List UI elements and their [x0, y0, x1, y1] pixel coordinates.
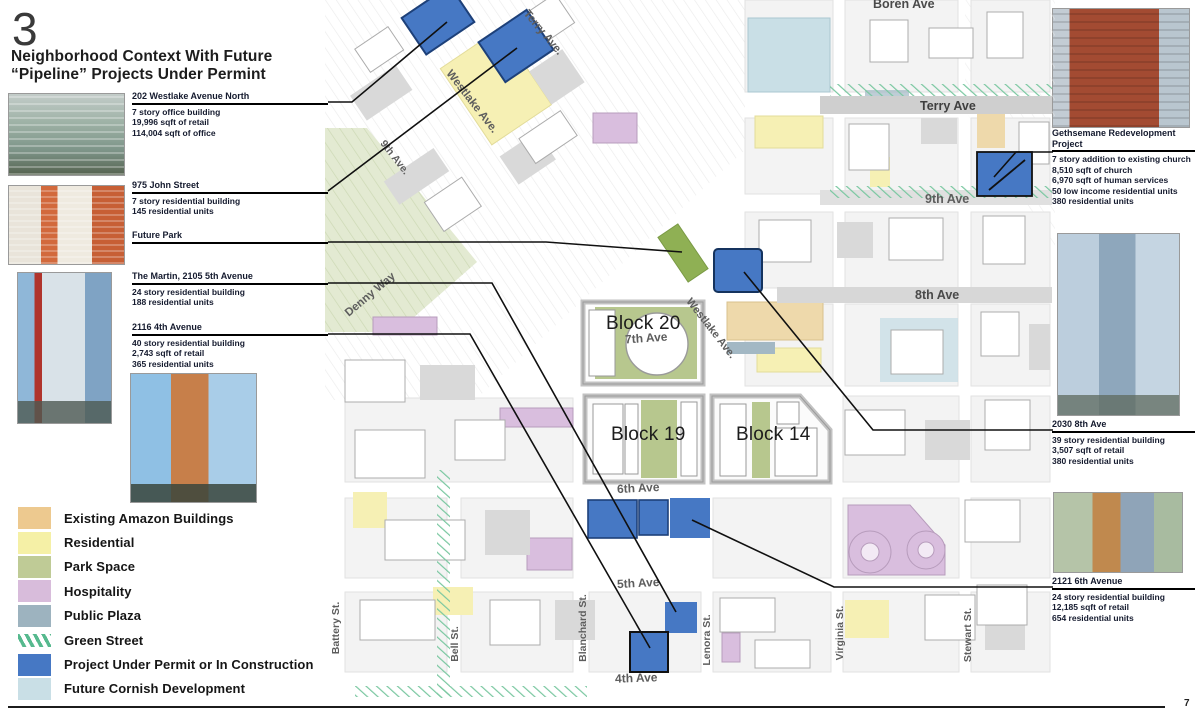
future-cornish-zone: [748, 18, 830, 92]
legend-swatch-hatch: [18, 634, 51, 647]
annotation-future-park: Future Park: [132, 230, 328, 246]
annotation-title: The Martin, 2105 5th Avenue: [132, 271, 328, 285]
street-label-lenora-st: Lenora St.: [701, 605, 713, 675]
photo-975-john: [8, 185, 125, 265]
legend-item-residential: Residential: [18, 530, 313, 554]
annotation-title: Future Park: [132, 230, 328, 244]
annotation-2121-6th: 2121 6th Avenue 24 story residential bui…: [1052, 576, 1195, 623]
annotation-gethsemane: Gethsemane Redevelopment Project 7 story…: [1052, 128, 1195, 207]
page-title-line2: “Pipeline” Projects Under Permint: [11, 66, 272, 84]
annotation-line: 24 story residential building: [1052, 592, 1195, 603]
legend-item-public-plaza: Public Plaza: [18, 604, 313, 628]
annotation-line: 19,996 sqft of retail: [132, 117, 328, 128]
legend-label: Hospitality: [64, 584, 132, 599]
footer-page-number: 7: [1184, 698, 1190, 709]
green-street-terry: [830, 84, 1052, 96]
legend-item-park-space: Park Space: [18, 555, 313, 579]
street-label-5th-ave: 5th Ave: [617, 575, 660, 591]
annotation-line: 2,743 sqft of retail: [132, 348, 328, 359]
annotation-title: 975 John Street: [132, 180, 328, 194]
annotation-2030-8th: 2030 8th Ave 39 story residential buildi…: [1052, 419, 1195, 466]
annotation-line: 654 residential units: [1052, 613, 1195, 624]
photo-gethsemane: [1052, 8, 1190, 128]
legend-swatch: [18, 507, 51, 529]
annotation-title: Gethsemane Redevelopment Project: [1052, 128, 1195, 152]
legend-label: Future Cornish Development: [64, 681, 245, 696]
project-2116-site: [630, 632, 668, 672]
street-label-8th-ave: 8th Ave: [915, 288, 959, 302]
annotation-line: 6,970 sqft of human services: [1052, 175, 1195, 186]
legend-swatch: [18, 556, 51, 578]
project-martin-site: [665, 602, 697, 633]
annotation-line: 40 story residential building: [132, 338, 328, 349]
annotation-975-john: 975 John Street 7 story residential buil…: [132, 180, 328, 217]
street-label-boren-ave: Boren Ave: [873, 0, 935, 11]
annotation-line: 380 residential units: [1052, 196, 1195, 207]
annotation-line: 188 residential units: [132, 297, 328, 308]
legend-swatch: [18, 678, 51, 700]
photo-202-westlake: [8, 93, 125, 176]
project-gethsemane-site: [977, 152, 1032, 196]
annotation-title: 2030 8th Ave: [1052, 419, 1195, 433]
photo-2121-6th: [1053, 492, 1183, 573]
legend-swatch: [18, 580, 51, 602]
legend-item-hospitality: Hospitality: [18, 579, 313, 603]
project-2030-site: [714, 249, 762, 292]
map-legend: Existing Amazon Buildings Residential Pa…: [18, 506, 313, 701]
annotation-line: 145 residential units: [132, 206, 328, 217]
page-title-line1: Neighborhood Context With Future: [11, 48, 272, 66]
legend-item-project-under-permit: Project Under Permit or In Construction: [18, 652, 313, 676]
green-street-4th: [355, 686, 587, 697]
legend-swatch: [18, 532, 51, 554]
legend-swatch: [18, 605, 51, 627]
street-label-4th-ave: 4th Ave: [615, 670, 658, 685]
photo-2030-8th: [1057, 233, 1180, 416]
annotation-line: 365 residential units: [132, 359, 328, 370]
street-label-stewart-st: Stewart St.: [962, 600, 974, 670]
legend-item-future-cornish: Future Cornish Development: [18, 677, 313, 701]
annotation-line: 50 low income residential units: [1052, 186, 1195, 197]
block-label-19: Block 19: [611, 424, 685, 446]
street-label-virginia-st: Virginia St.: [834, 598, 846, 668]
annotation-202-westlake: 202 Westlake Avenue North 7 story office…: [132, 91, 328, 138]
block-label-20: Block 20: [606, 313, 680, 335]
annotation-line: 7 story residential building: [132, 196, 328, 207]
footer-rule: [8, 706, 1165, 708]
legend-label: Public Plaza: [64, 608, 141, 623]
annotation-2116-4th: 2116 4th Avenue 40 story residential bui…: [132, 322, 328, 369]
annotation-the-martin: The Martin, 2105 5th Avenue 24 story res…: [132, 271, 328, 308]
annotation-line: 7 story office building: [132, 107, 328, 118]
plan-sheet: 3 Neighborhood Context With Future “Pipe…: [0, 0, 1200, 721]
legend-swatch: [18, 654, 51, 676]
street-label-blanchard-st: Blanchard St.: [577, 588, 589, 668]
photo-the-martin: [17, 272, 112, 424]
legend-item-amazon: Existing Amazon Buildings: [18, 506, 313, 530]
street-label-bell-st: Bell St.: [449, 614, 461, 674]
legend-label: Residential: [64, 535, 134, 550]
annotation-line: 7 story addition to existing church: [1052, 154, 1195, 165]
annotation-line: 24 story residential building: [132, 287, 328, 298]
photo-2116-4th: [130, 373, 257, 503]
legend-label: Existing Amazon Buildings: [64, 511, 234, 526]
street-label-battery-st: Battery St.: [330, 598, 342, 658]
annotation-line: 3,507 sqft of retail: [1052, 445, 1195, 456]
annotation-title: 2116 4th Avenue: [132, 322, 328, 336]
annotation-line: 39 story residential building: [1052, 435, 1195, 446]
legend-label: Project Under Permit or In Construction: [64, 657, 313, 672]
annotation-title: 2121 6th Avenue: [1052, 576, 1195, 590]
street-label-6th-ave: 6th Ave: [617, 480, 660, 496]
block-label-14: Block 14: [736, 424, 810, 446]
page-title: Neighborhood Context With Future “Pipeli…: [11, 48, 272, 84]
future-park-site: [658, 224, 708, 282]
annotation-line: 8,510 sqft of church: [1052, 165, 1195, 176]
street-label-9th-ave: 9th Ave: [925, 192, 969, 206]
project-2121-site: [670, 498, 710, 538]
street-label-terry-ave: Terry Ave: [920, 99, 976, 113]
legend-item-green-street: Green Street: [18, 628, 313, 652]
annotation-line: 380 residential units: [1052, 456, 1195, 467]
annotation-line: 12,185 sqft of retail: [1052, 602, 1195, 613]
annotation-title: 202 Westlake Avenue North: [132, 91, 328, 105]
neighborhood-map: Boren Ave Terry Ave. Westlake Ave. 9th A…: [325, 0, 1055, 700]
legend-label: Park Space: [64, 559, 135, 574]
legend-label: Green Street: [64, 633, 143, 648]
annotation-line: 114,004 sqft of office: [132, 128, 328, 139]
